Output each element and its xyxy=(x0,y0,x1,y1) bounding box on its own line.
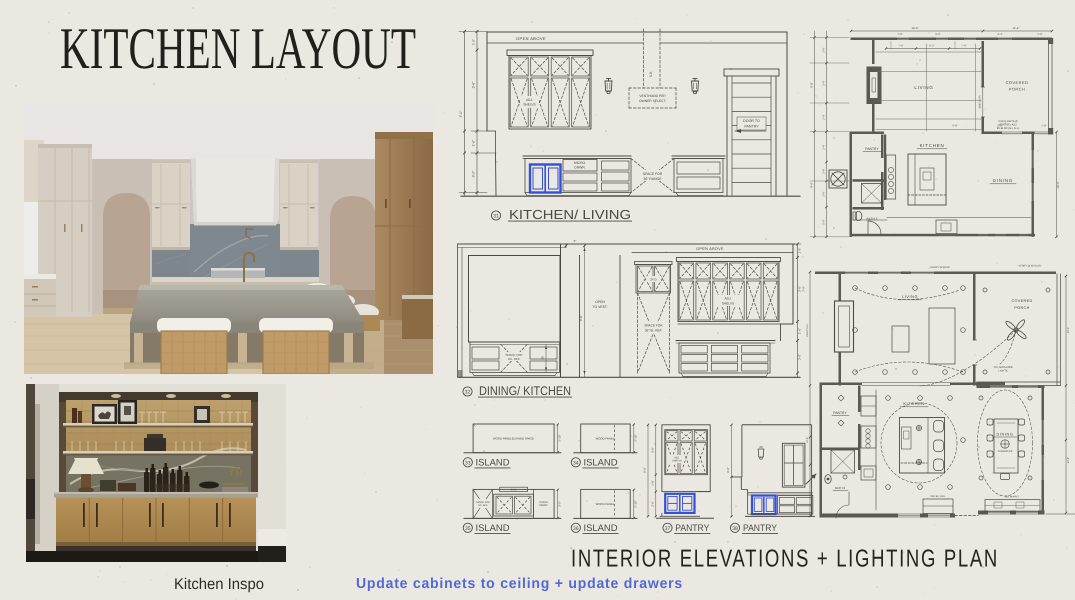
svg-text:ADJ.: ADJ. xyxy=(725,297,732,301)
svg-text:7'-0": 7'-0" xyxy=(459,110,463,118)
svg-text:BATH 2: BATH 2 xyxy=(867,217,878,221)
svg-text:ISLAND: ISLAND xyxy=(584,458,618,469)
svg-text:LIVING: LIVING xyxy=(902,294,918,299)
svg-text:2'-10": 2'-10" xyxy=(558,434,562,441)
svg-text:9'-4": 9'-4" xyxy=(811,182,814,187)
svg-text:SHELVS: SHELVS xyxy=(672,460,682,463)
svg-text:24"D: 24"D xyxy=(650,278,657,282)
svg-text:COVERED: COVERED xyxy=(1006,80,1029,85)
svg-text:38: 38 xyxy=(732,526,738,532)
svg-text:MICRO.: MICRO. xyxy=(574,161,586,165)
svg-text:35: 35 xyxy=(465,526,471,532)
svg-text:ISLAND: ISLAND xyxy=(476,458,510,469)
svg-text:8'-0": 8'-0" xyxy=(644,467,647,472)
svg-text:2'-4": 2'-4" xyxy=(823,114,826,119)
svg-text:SPACE FOR: SPACE FOR xyxy=(643,172,663,176)
svg-text:KITCHEN/ LIVING: KITCHEN/ LIVING xyxy=(509,207,631,222)
svg-text:DRWR: DRWR xyxy=(539,504,547,507)
svg-text:36" BI. REF.: 36" BI. REF. xyxy=(645,329,662,333)
svg-text:OPEN ABOVE: OPEN ABOVE xyxy=(516,36,546,41)
svg-text:1'-0": 1'-0" xyxy=(472,39,476,45)
svg-text:ADJ.: ADJ. xyxy=(526,98,533,102)
svg-text:10'-8": 10'-8" xyxy=(1067,457,1070,463)
svg-text:WOOD PANEL: WOOD PANEL xyxy=(596,437,615,441)
svg-text:PANTRY: PANTRY xyxy=(865,147,879,151)
svg-text:WD. BUFFET: WD. BUFFET xyxy=(1005,496,1020,499)
svg-text:1'-6": 1'-6" xyxy=(798,248,802,254)
svg-text:3'-4": 3'-4" xyxy=(823,80,826,85)
svg-text:2'-8": 2'-8" xyxy=(1042,125,1047,128)
svg-text:SPACE FOR: SPACE FOR xyxy=(644,324,663,328)
svg-text:37: 37 xyxy=(665,526,671,532)
svg-text:PANTRY: PANTRY xyxy=(675,523,710,534)
svg-text:1'-6": 1'-6" xyxy=(798,328,802,334)
svg-text:33: 33 xyxy=(465,461,471,467)
svg-text:3'-6": 3'-6" xyxy=(472,81,476,89)
svg-text:1'-6": 1'-6" xyxy=(651,480,654,485)
svg-text:OWNER SELECT.: OWNER SELECT. xyxy=(639,99,666,103)
svg-text:12'-0": 12'-0" xyxy=(1067,327,1070,333)
svg-text:WOOD PANELED KNEE SPACE: WOOD PANELED KNEE SPACE xyxy=(493,437,534,441)
svg-text:7'-6": 7'-6" xyxy=(802,286,806,292)
svg-text:SHELVS: SHELVS xyxy=(523,103,535,107)
svg-text:3068 DOOR: 3068 DOOR xyxy=(979,95,982,108)
svg-text:9'-6": 9'-6" xyxy=(579,314,583,321)
svg-text:DRWR.: DRWR. xyxy=(574,166,585,170)
svg-text:5'-0": 5'-0" xyxy=(823,219,826,224)
svg-text:2'-6": 2'-6" xyxy=(651,501,654,506)
svg-text:LIVING: LIVING xyxy=(914,85,933,90)
svg-text:1'-6": 1'-6" xyxy=(472,140,476,146)
svg-text:WOOD PANEL: WOOD PANEL xyxy=(596,502,615,506)
svg-text:5'-8": 5'-8" xyxy=(953,125,958,128)
svg-text:OPEN ABOVE: OPEN ABOVE xyxy=(696,247,724,251)
svg-text:3'-0": 3'-0" xyxy=(472,170,476,178)
svg-text:WD. BX. REF.: WD. BX. REF. xyxy=(930,495,945,498)
svg-text:DINING: DINING xyxy=(993,178,1013,183)
svg-text:DINING: DINING xyxy=(997,433,1014,437)
svg-text:5'-0": 5'-0" xyxy=(998,125,1003,128)
svg-text:PORCH: PORCH xyxy=(1014,306,1029,310)
svg-text:9": 9" xyxy=(574,239,577,243)
svg-text:5'-6": 5'-6" xyxy=(823,168,826,173)
svg-text:2'-10": 2'-10" xyxy=(634,500,638,507)
svg-text:3'-0": 3'-0" xyxy=(558,501,562,507)
svg-text:SHELVS: SHELVS xyxy=(722,302,734,306)
svg-text:PANTRY: PANTRY xyxy=(833,411,847,415)
svg-text:VERIFY ALL: VERIFY ALL xyxy=(806,323,809,337)
svg-text:PANTRY: PANTRY xyxy=(744,125,759,129)
svg-text:36" RANGE: 36" RANGE xyxy=(644,177,663,181)
svg-text:COVERED: COVERED xyxy=(1011,299,1032,303)
svg-text:31: 31 xyxy=(493,214,499,220)
svg-text:OPEN: OPEN xyxy=(595,300,605,304)
svg-text:PANTRY: PANTRY xyxy=(743,523,778,534)
svg-text:3'-0": 3'-0" xyxy=(798,354,802,360)
svg-text:5'-4": 5'-4" xyxy=(998,33,1003,36)
svg-text:24'-8": 24'-8" xyxy=(912,27,919,30)
svg-text:5'-0": 5'-0" xyxy=(936,33,941,36)
svg-text:ISLAND: ISLAND xyxy=(584,523,618,534)
svg-text:9'-8": 9'-8" xyxy=(811,82,814,87)
svg-text:8'-2": 8'-2" xyxy=(929,45,934,48)
svg-text:Kitchen Inspo: Kitchen Inspo xyxy=(174,576,264,593)
svg-text:TO VEST.: TO VEST. xyxy=(592,305,607,309)
svg-text:CHANDELIER: CHANDELIER xyxy=(998,450,1013,453)
svg-text:VENTHOOD PER: VENTHOOD PER xyxy=(639,94,666,98)
svg-text:KITCHEN: KITCHEN xyxy=(920,143,945,148)
svg-text:SINK: SINK xyxy=(511,489,517,492)
svg-text:11'-4": 11'-4" xyxy=(1013,27,1020,30)
svg-text:VERIFY W/ BLDR: VERIFY W/ BLDR xyxy=(930,266,949,269)
svg-text:DOOR TO: DOOR TO xyxy=(743,119,760,123)
svg-text:ISLAND: ISLAND xyxy=(476,523,510,534)
svg-text:KITCHEN LAYOUT: KITCHEN LAYOUT xyxy=(60,15,416,81)
svg-text:14'-0": 14'-0" xyxy=(806,437,809,443)
svg-text:13'-0": 13'-0" xyxy=(1057,182,1060,189)
svg-text:INTERIOR ELEVATIONS + LIGHTING: INTERIOR ELEVATIONS + LIGHTING PLAN xyxy=(571,546,999,573)
svg-text:VERIFY @ W/ BLDR.: VERIFY @ W/ BLDR. xyxy=(1019,265,1042,268)
svg-text:DINING/ KITCHEN: DINING/ KITCHEN xyxy=(479,384,571,398)
svg-text:36: 36 xyxy=(573,526,579,532)
svg-text:8'-0": 8'-0" xyxy=(727,467,730,472)
svg-text:PORCH: PORCH xyxy=(1009,87,1026,92)
svg-text:7'-6": 7'-6" xyxy=(961,45,966,48)
svg-text:32: 32 xyxy=(465,390,471,396)
svg-text:2'-10": 2'-10" xyxy=(634,434,638,441)
svg-text:BATH 2: BATH 2 xyxy=(835,486,846,490)
svg-text:2'-8": 2'-8" xyxy=(1038,33,1043,36)
svg-text:UC. REF.: UC. REF. xyxy=(508,357,521,361)
svg-text:2'-0": 2'-0" xyxy=(823,191,826,196)
svg-text:LIGHTS: LIGHTS xyxy=(998,370,1007,373)
svg-text:7'-6": 7'-6" xyxy=(898,45,903,48)
svg-text:3'-6": 3'-6" xyxy=(651,447,654,452)
svg-text:Update cabinets to ceiling + u: Update cabinets to ceiling + update draw… xyxy=(356,576,683,592)
svg-text:S.R.: S.R. xyxy=(649,71,653,77)
svg-text:30: 30 xyxy=(541,356,545,360)
svg-text:2'-4": 2'-4" xyxy=(823,144,826,149)
svg-text:2'-0": 2'-0" xyxy=(823,47,826,52)
svg-text:34: 34 xyxy=(573,461,579,467)
svg-text:7'-8": 7'-8" xyxy=(898,33,903,36)
svg-text:UC. REF.: UC. REF. xyxy=(478,504,488,507)
